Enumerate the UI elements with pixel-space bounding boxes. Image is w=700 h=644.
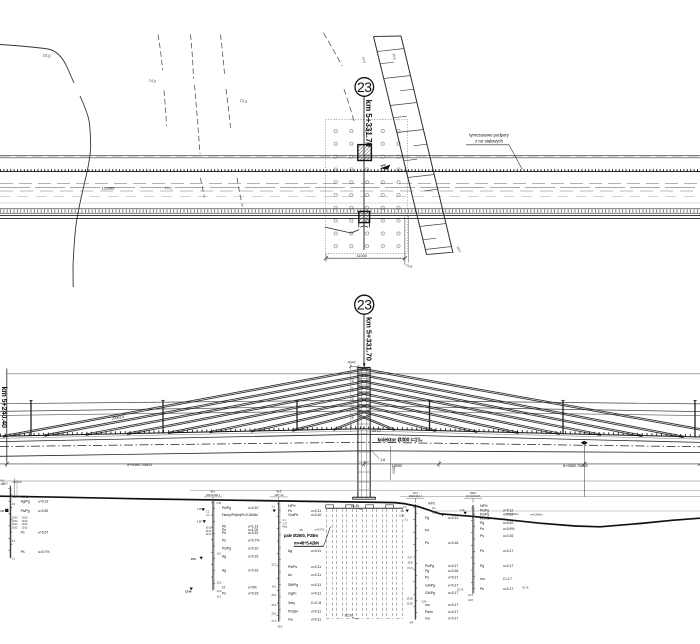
- svg-text:u=0.11: u=0.11: [311, 592, 321, 596]
- svg-text:25.4: 25.4: [272, 593, 277, 597]
- svg-text:u=0.11: u=0.11: [311, 549, 321, 553]
- svg-text:C/10: C/10: [432, 511, 438, 515]
- svg-text:8+9580-76800: 8+9580-76800: [563, 463, 589, 468]
- svg-text:u=0.17: u=0.17: [448, 564, 458, 568]
- svg-text:Pg: Pg: [425, 516, 429, 520]
- svg-text:Ag: Ag: [222, 569, 226, 573]
- svg-text:27.0: 27.0: [272, 619, 277, 623]
- svg-text:19.1: 19.1: [272, 585, 277, 589]
- svg-text:Ps: Ps: [480, 587, 484, 591]
- svg-text:24.8: 24.8: [468, 598, 473, 602]
- svg-text:10/10.9: 10/10.9: [13, 480, 22, 484]
- svg-text:u=3%: u=3%: [248, 586, 257, 590]
- svg-text:u=0.5%: u=0.5%: [503, 527, 514, 531]
- svg-text:LP: LP: [1, 509, 5, 513]
- svg-text:10.93/10.97: 10.93/10.97: [466, 494, 481, 498]
- svg-text:u=0.10: u=0.10: [311, 513, 321, 517]
- svg-text:SM/Pg: SM/Pg: [288, 583, 298, 587]
- svg-text:4047: 4047: [348, 361, 356, 365]
- svg-text:u=0.17: u=0.17: [448, 610, 458, 614]
- svg-text:14.2: 14.2: [217, 595, 222, 599]
- svg-text:3mq: 3mq: [288, 601, 295, 605]
- svg-text:Ps: Ps: [425, 541, 429, 545]
- svg-text:Ps: Ps: [21, 531, 25, 535]
- svg-text:Pg: Pg: [425, 569, 429, 573]
- svg-text:u=0.16: u=0.16: [448, 569, 458, 573]
- svg-text:tymczasowe podpory: tymczasowe podpory: [469, 133, 509, 138]
- svg-text:u=0.15: u=0.15: [248, 555, 258, 559]
- svg-text:121999: 121999: [102, 186, 116, 191]
- svg-text:32.76: 32.76: [522, 586, 529, 590]
- svg-text:2W: 2W: [1, 482, 5, 486]
- svg-text:H/Pd: H/Pd: [428, 501, 435, 505]
- svg-text:2.2: 2.2: [272, 505, 276, 509]
- svg-text:19.02: 19.02: [407, 597, 414, 601]
- svg-text:u=0.10: u=0.10: [248, 506, 258, 510]
- svg-text:u=0.57: u=0.57: [38, 531, 48, 535]
- svg-text:Po: Po: [222, 592, 226, 596]
- svg-text:1.30: 1.30: [460, 508, 465, 512]
- svg-text:C=1.7: C=1.7: [503, 577, 512, 581]
- svg-text:Ps/Pg: Ps/Pg: [21, 509, 30, 513]
- svg-text:u=0.17: u=0.17: [503, 564, 513, 568]
- svg-text:GA/Pg: GA/Pg: [425, 591, 435, 595]
- svg-text:mu: mu: [425, 616, 430, 620]
- svg-text:u=0.17: u=0.17: [503, 549, 513, 553]
- svg-text:pale Ø1500, l=28m: pale Ø1500, l=28m: [284, 533, 318, 538]
- svg-text:26.2: 26.2: [272, 612, 277, 616]
- svg-text:u=0.17: u=0.17: [448, 603, 458, 607]
- svg-text:Pd/Ps: Pd/Ps: [288, 565, 297, 569]
- svg-text:109.9/110.1: 109.9/110.1: [408, 494, 422, 498]
- svg-text:30.0: 30.0: [278, 625, 283, 629]
- svg-text:u=0.12: u=0.12: [448, 516, 458, 520]
- svg-text:10.1: 10.1: [217, 552, 222, 556]
- svg-text:u=0.16: u=0.16: [503, 534, 513, 538]
- svg-text:m=48÷5.42kN: m=48÷5.42kN: [294, 540, 319, 545]
- svg-text:Ps: Ps: [480, 534, 484, 538]
- svg-text:z rur stalowych: z rur stalowych: [475, 138, 503, 143]
- svg-text:Ps: Ps: [21, 550, 25, 554]
- svg-text:Ag: Ag: [222, 555, 226, 559]
- svg-text:1047: 1047: [351, 387, 355, 394]
- svg-text:Ag: Ag: [288, 549, 292, 553]
- svg-text:u=0.17: u=0.17: [503, 587, 513, 591]
- svg-text:u=0.17: u=0.17: [448, 591, 458, 595]
- svg-text:109.9/102.1: 109.9/102.1: [206, 493, 221, 497]
- svg-text:820: 820: [349, 425, 353, 430]
- svg-text:Pa/m: Pa/m: [425, 610, 433, 614]
- svg-text:Ag/Pg: Ag/Pg: [21, 499, 30, 503]
- svg-text:u=0.52: u=0.52: [38, 509, 48, 513]
- svg-text:km 5+331.70: km 5+331.70: [364, 100, 373, 148]
- svg-text:u=0.16: u=0.16: [448, 541, 458, 545]
- svg-text:11000: 11000: [357, 253, 368, 258]
- svg-text:23: 23: [357, 297, 372, 313]
- svg-text:C/10: C/10: [399, 514, 405, 518]
- svg-text:Pg: Pg: [480, 521, 484, 525]
- svg-text:u=0.15: u=0.15: [248, 592, 258, 596]
- svg-text:Ps0: Ps0: [191, 557, 196, 561]
- svg-text:GA/Pg: GA/Pg: [425, 583, 435, 587]
- svg-text:A/4: A/4: [410, 621, 414, 625]
- svg-text:1047: 1047: [351, 414, 355, 421]
- svg-text:23: 23: [357, 79, 372, 95]
- svg-text:Ps: Ps: [288, 509, 292, 513]
- svg-text:25.2: 25.2: [272, 603, 277, 607]
- svg-text:Ps: Ps: [222, 531, 226, 535]
- svg-text:u=0.17: u=0.17: [448, 575, 458, 579]
- svg-text:6.1: 6.1: [12, 557, 16, 561]
- svg-text:C=0.2kN/m: C=0.2kN/m: [506, 512, 520, 516]
- svg-text:kolektor Ø300 i=1‰: kolektor Ø300 i=1‰: [378, 438, 423, 444]
- svg-text:P4: P4: [425, 529, 429, 533]
- svg-text:1,8: 1,8: [380, 458, 385, 462]
- svg-text:u=0.7%: u=0.7%: [38, 550, 49, 554]
- svg-text:km 5+331.70: km 5+331.70: [364, 317, 373, 361]
- svg-text:Neq: Neq: [283, 525, 288, 529]
- svg-text:13.46: 13.46: [185, 590, 192, 594]
- svg-text:10/7.10: 10/7.10: [274, 493, 283, 497]
- svg-text:u=0.11: u=0.11: [311, 573, 321, 577]
- svg-text:15.45: 15.45: [351, 504, 360, 508]
- svg-text:19.2: 19.2: [217, 581, 222, 585]
- svg-text:8.3: 8.3: [12, 539, 16, 543]
- svg-text:mu: mu: [288, 617, 293, 621]
- svg-text:0.90: 0.90: [217, 501, 222, 505]
- svg-text:-16.50: -16.50: [344, 614, 354, 618]
- svg-text:u=0.7%: u=0.7%: [248, 539, 259, 543]
- svg-text:Ps/Pg: Ps/Pg: [222, 506, 231, 510]
- svg-text:u=0.7%: u=0.7%: [315, 528, 325, 532]
- svg-text:u=0.11: u=0.11: [311, 610, 321, 614]
- svg-text:20.02: 20.02: [407, 602, 414, 606]
- svg-text:Po: Po: [425, 575, 429, 579]
- svg-text:14.0: 14.0: [164, 186, 171, 191]
- svg-text:13.0: 13.0: [217, 589, 222, 593]
- svg-text:A.8: A.8: [408, 556, 412, 560]
- svg-text:Ps/Qm: Ps/Qm: [288, 610, 298, 614]
- svg-text:C24: C24: [422, 600, 427, 604]
- svg-text:4.4: 4.4: [401, 509, 405, 513]
- svg-text:u=0.11: u=0.11: [311, 565, 321, 569]
- svg-text:C=0.11: C=0.11: [311, 601, 322, 605]
- svg-text:u=0.10: u=0.10: [248, 547, 258, 551]
- svg-text:18000: 18000: [392, 463, 403, 468]
- svg-text:5.80: 5.80: [197, 519, 202, 523]
- svg-text:1.6: 1.6: [12, 502, 16, 506]
- svg-text:u=0.2kN/m: u=0.2kN/m: [530, 513, 543, 517]
- svg-text:24.3: 24.3: [468, 593, 473, 597]
- svg-text:10.02: 10.02: [22, 525, 29, 529]
- svg-text:u=0.17: u=0.17: [448, 583, 458, 587]
- svg-text:u=0.11: u=0.11: [311, 583, 321, 587]
- svg-text:u=0.11: u=0.11: [311, 509, 321, 513]
- svg-text:Ps: Ps: [480, 527, 484, 531]
- svg-text:Pg: Pg: [480, 564, 484, 568]
- svg-text:mu: mu: [480, 577, 485, 581]
- svg-text:2.3: 2.3: [403, 505, 407, 509]
- svg-text:u=0.52: u=0.52: [503, 521, 513, 525]
- svg-text:P1.6: P1.6: [408, 566, 414, 570]
- svg-text:Ps: Ps: [480, 549, 484, 553]
- svg-text:H/Pd: H/Pd: [288, 504, 296, 508]
- svg-text:u=0.10: u=0.10: [248, 531, 258, 535]
- svg-text:Humy/Pd(m)/H=0.2kN/m: Humy/Pd(m)/H=0.2kN/m: [222, 513, 258, 517]
- svg-text:21.2: 21.2: [272, 563, 277, 567]
- svg-text:u=0.19: u=0.19: [38, 499, 48, 503]
- svg-text:u=0.15: u=0.15: [248, 569, 258, 573]
- svg-text:1047: 1047: [351, 405, 355, 412]
- svg-text:u=0.11: u=0.11: [311, 617, 321, 621]
- svg-text:u=0.17: u=0.17: [448, 616, 458, 620]
- svg-text:8+9580-76800: 8+9580-76800: [127, 462, 153, 467]
- svg-text:Gm/Ps: Gm/Ps: [288, 513, 299, 517]
- svg-text:Ps: Ps: [222, 539, 226, 543]
- svg-text:Pb: Pb: [300, 528, 304, 532]
- svg-text:W2: W2: [1, 479, 5, 483]
- svg-text:Ps/Pg: Ps/Pg: [425, 564, 434, 568]
- svg-text:10.02: 10.02: [206, 533, 212, 536]
- svg-text:0.5: 0.5: [13, 495, 17, 499]
- svg-text:km 5+240.40: km 5+240.40: [0, 387, 9, 429]
- svg-text:mg/m: mg/m: [288, 592, 297, 596]
- svg-text:Av: Av: [288, 573, 292, 577]
- svg-text:16.8: 16.8: [408, 561, 413, 565]
- svg-text:1047: 1047: [351, 378, 355, 385]
- svg-text:1.30: 1.30: [197, 507, 202, 511]
- svg-text:Ps/Pg: Ps/Pg: [222, 547, 231, 551]
- svg-text:10.02: 10.02: [12, 525, 19, 529]
- svg-text:22.76: 22.76: [457, 588, 464, 592]
- svg-text:1047: 1047: [351, 396, 355, 403]
